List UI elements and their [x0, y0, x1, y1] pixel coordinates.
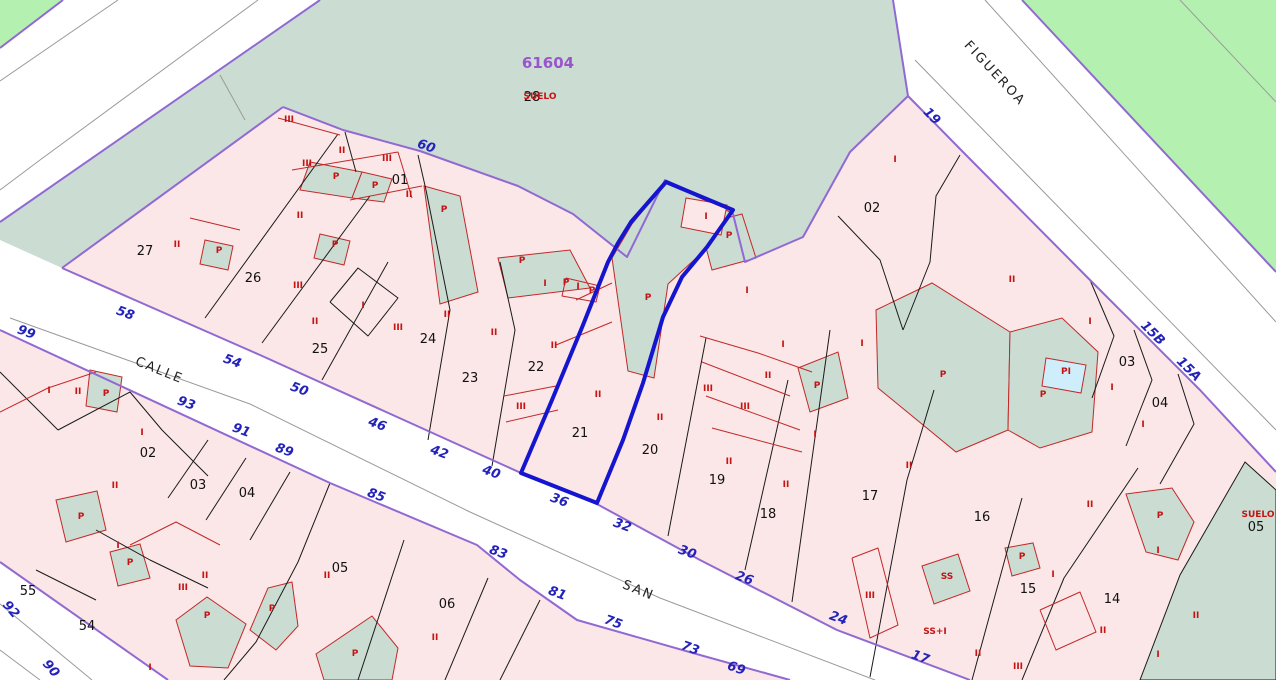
floor-count-label: P: [333, 172, 340, 182]
floor-count-label: II: [1009, 275, 1016, 285]
floor-count-label: III: [302, 159, 312, 169]
parcel-number-label[interactable]: 05: [332, 561, 349, 576]
parcel-number-label[interactable]: 03: [190, 478, 207, 493]
street-portal-number: 36: [548, 491, 570, 511]
street-name-label: SAN: [620, 578, 656, 604]
floor-count-label: III: [293, 281, 303, 291]
floor-count-label: P: [216, 246, 223, 256]
parcel-number-label[interactable]: 05: [1248, 520, 1265, 535]
floor-count-label: P: [940, 370, 947, 380]
floor-count-label: III: [740, 402, 750, 412]
floor-count-label: I: [543, 279, 546, 289]
floor-count-label: P: [204, 611, 211, 621]
parcel-number-label[interactable]: 15: [1020, 582, 1037, 597]
floor-count-label: P: [645, 293, 652, 303]
parcel-number-label[interactable]: 16: [974, 510, 991, 525]
floor-count-label: I: [116, 541, 119, 551]
parcel-number-label[interactable]: 54: [79, 619, 96, 634]
parcel-number-label[interactable]: 21: [572, 426, 589, 441]
block-number-label: 61604: [522, 54, 574, 72]
suelo-label: SUELO: [523, 92, 556, 102]
parcel-number-label[interactable]: 24: [420, 332, 437, 347]
floor-count-label: II: [1193, 611, 1200, 621]
parcel-number-label[interactable]: 55: [20, 584, 37, 599]
floor-count-label: II: [75, 387, 82, 397]
floor-count-label: I: [1141, 420, 1144, 430]
floor-count-label: II: [783, 480, 790, 490]
parcel-number-label[interactable]: 19: [709, 473, 726, 488]
floor-count-label: I: [361, 301, 364, 311]
floor-count-label: P: [441, 205, 448, 215]
floor-count-label: III: [865, 591, 875, 601]
parcel-number-label[interactable]: 04: [239, 486, 256, 501]
floor-count-label: P: [563, 278, 570, 288]
street-name-label: CALLE: [133, 354, 186, 387]
street-name-label: FIGUEROA: [961, 38, 1029, 109]
floor-count-label: P: [269, 604, 276, 614]
street-portal-number: 46: [365, 414, 388, 435]
street-portal-number: 58: [114, 304, 136, 324]
floor-count-label: II: [906, 461, 913, 471]
floor-count-label: II: [297, 211, 304, 221]
cadastral-map[interactable]: IIIIIIIIPIIIPIIPIIIIPIIIIIPIIIIIIIIIIIII…: [0, 0, 1276, 680]
floor-count-label: III: [1013, 662, 1023, 672]
floor-count-label: I: [1051, 570, 1054, 580]
floor-count-label: II: [595, 390, 602, 400]
road-line: [0, 650, 40, 680]
parcel-number-label[interactable]: 22: [528, 360, 545, 375]
parcel-number-label[interactable]: 26: [245, 271, 262, 286]
floor-count-label: II: [112, 481, 119, 491]
parcel-number-label[interactable]: 17: [862, 489, 879, 504]
floor-count-label: I: [1156, 546, 1159, 556]
floor-count-label: I: [704, 212, 707, 222]
floor-count-label: II: [174, 240, 181, 250]
floor-count-label: P: [519, 256, 526, 266]
parcel-number-label[interactable]: 18: [760, 507, 777, 522]
parcel-number-label[interactable]: 04: [1152, 396, 1169, 411]
floor-count-label: SS: [941, 572, 954, 582]
parcel-number-label[interactable]: 01: [392, 173, 409, 188]
floor-count-label: I: [813, 430, 816, 440]
floor-count-label: SS+I: [923, 627, 946, 637]
floor-count-label: P: [1157, 511, 1164, 521]
floor-count-label: P: [352, 649, 359, 659]
floor-count-label: II: [975, 649, 982, 659]
floor-count-label: I: [893, 155, 896, 165]
floor-count-label: II: [1100, 626, 1107, 636]
street-portal-number: 50: [288, 380, 310, 400]
floor-count-label: II: [765, 371, 772, 381]
floor-count-label: I: [781, 340, 784, 350]
floor-count-label: II: [406, 190, 413, 200]
parcel-number-label[interactable]: 20: [642, 443, 659, 458]
street-portal-number: 93: [175, 394, 197, 414]
street-portal-number: 40: [479, 462, 502, 483]
floor-count-label: I: [140, 428, 143, 438]
street-portal-number: 92: [0, 598, 22, 622]
parcel-number-label[interactable]: 02: [864, 201, 881, 216]
street-portal-number: 54: [221, 352, 243, 372]
parcel-number-label[interactable]: 06: [439, 597, 456, 612]
floor-count-label: P: [814, 381, 821, 391]
floor-count-label: II: [312, 317, 319, 327]
suelo-label: SUELO: [1241, 510, 1274, 520]
floor-count-label: III: [178, 583, 188, 593]
floor-count-label: I: [1156, 650, 1159, 660]
floor-count-label: III: [703, 384, 713, 394]
floor-count-label: III: [393, 323, 403, 333]
floor-count-label: II: [324, 571, 331, 581]
floor-count-label: II: [202, 571, 209, 581]
floor-count-label: P: [127, 558, 134, 568]
floor-count-label: II: [444, 310, 451, 320]
floor-count-label: III: [284, 115, 294, 125]
floor-count-label: I: [860, 339, 863, 349]
floor-count-label: I: [1110, 383, 1113, 393]
floor-count-label: P: [78, 512, 85, 522]
parcel-number-label[interactable]: 02: [140, 446, 157, 461]
floor-count-label: P: [103, 389, 110, 399]
floor-count-label: II: [551, 341, 558, 351]
floor-count-label: P: [726, 231, 733, 241]
floor-count-label: I: [576, 282, 579, 292]
floor-count-label: P: [1019, 552, 1026, 562]
floor-count-label: PI: [1061, 367, 1071, 377]
floor-count-label: P: [372, 181, 379, 191]
floor-count-label: II: [657, 413, 664, 423]
parcel-number-label[interactable]: 25: [312, 342, 329, 357]
parcel-number-label[interactable]: 14: [1104, 592, 1121, 607]
parcel-number-label[interactable]: 23: [462, 371, 479, 386]
floor-count-label: II: [491, 328, 498, 338]
street-portal-number: 90: [39, 657, 62, 680]
floor-count-label: III: [382, 154, 392, 164]
floor-count-label: P: [1040, 390, 1047, 400]
floor-count-label: II: [1087, 500, 1094, 510]
floor-count-label: III: [516, 402, 526, 412]
floor-count-label: II: [339, 146, 346, 156]
parcel-number-label[interactable]: 27: [137, 244, 154, 259]
floor-count-label: I: [148, 663, 151, 673]
floor-count-label: I: [47, 386, 50, 396]
floor-count-label: I: [1088, 317, 1091, 327]
floor-count-label: P: [332, 240, 339, 250]
cadastral-map-viewport[interactable]: IIIIIIIIPIIIPIIPIIIIPIIIIIPIIIIIIIIIIIII…: [0, 0, 1276, 680]
parcel-number-label[interactable]: 03: [1119, 355, 1136, 370]
floor-count-label: II: [726, 457, 733, 467]
floor-count-label: P: [589, 286, 596, 296]
floor-count-label: II: [432, 633, 439, 643]
street-portal-number: 42: [427, 442, 450, 463]
floor-count-label: I: [745, 286, 748, 296]
